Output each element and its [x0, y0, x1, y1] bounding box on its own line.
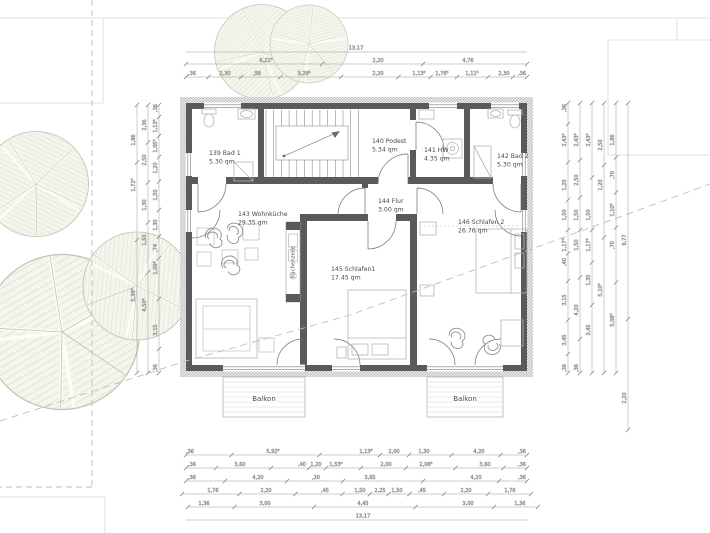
- dim-label: 2,25: [374, 488, 385, 494]
- room-area-bad1: 5.30 qm: [209, 159, 235, 166]
- dim-label: 6,21⁵: [259, 58, 272, 64]
- dim-label: 1,13⁵: [412, 71, 425, 77]
- dim-label: 1,20: [153, 162, 159, 173]
- dim-label: 2,50: [142, 154, 148, 165]
- dim-label: ,36: [186, 449, 194, 455]
- dim-label: 2,00: [388, 449, 399, 455]
- room-area-wohnkueche: 29.35 qm: [238, 220, 268, 227]
- dim-label: 1,72⁵: [131, 178, 137, 191]
- dim-label: 3,45: [586, 324, 592, 335]
- kitchen-label: Küchenzeile: [291, 245, 297, 278]
- vertical-boundary: [0, 0, 92, 487]
- dim-label: 4,20: [574, 304, 580, 315]
- dim-label: ,36: [188, 462, 196, 468]
- dim-label: ,74: [153, 244, 159, 252]
- dim-label: 1,35: [586, 274, 592, 285]
- room-area-hw: 4.35 qm: [424, 156, 450, 163]
- dim-label: 3,00: [462, 501, 473, 507]
- dim-label: ,40: [562, 258, 568, 266]
- balcony-1-label: Balkon: [252, 395, 276, 403]
- dim-label: 2,43⁵: [586, 133, 592, 146]
- dim-label: 2,20: [260, 488, 271, 494]
- dim-label: ,36: [518, 71, 526, 77]
- dim-label: 1,36: [514, 501, 525, 507]
- dim-label: ,36: [562, 364, 568, 372]
- dim-label: ,36: [188, 71, 196, 77]
- dim-label: 1,17⁵: [562, 238, 568, 251]
- dim-label: 2,50: [574, 174, 580, 185]
- dim-label: 4,20: [473, 449, 484, 455]
- room-label-podest: 140 Podest: [372, 138, 407, 145]
- room-label-bad2: 142 Bad 2: [497, 153, 529, 160]
- dim-label: ,36: [562, 104, 568, 112]
- room-area-flur: 3.00 qm: [378, 207, 404, 214]
- tree-icon: [0, 117, 103, 252]
- dim-label: 3,60: [479, 462, 490, 468]
- dim-label: 1,20: [598, 179, 604, 190]
- room-area-schlafen2: 26.76 qm: [458, 228, 488, 235]
- dim-label: 1,53⁵: [329, 462, 342, 468]
- dim-label: 1,50: [574, 209, 580, 220]
- overall-dim-top: 13,17: [349, 46, 364, 52]
- dim-label: ,70: [610, 241, 616, 249]
- floor-plan-drawing: Küchenzeile: [0, 0, 710, 533]
- dim-label: 1,36: [198, 501, 209, 507]
- dim-label: 1,13⁵: [153, 119, 159, 132]
- room-label-wohnkueche: 143 Wohnküche: [238, 211, 288, 218]
- dim-label: 2,20: [372, 58, 383, 64]
- dim-label: ,36: [153, 104, 159, 112]
- dim-label: 1,50: [562, 209, 568, 220]
- room-label-bad1: 139 Bad 1: [209, 150, 241, 157]
- dim-label: 9,77: [622, 234, 628, 245]
- dim-label: 1,11⁵: [465, 71, 478, 77]
- dim-label: ,36: [518, 462, 526, 468]
- dim-label: 2,43⁵: [574, 133, 580, 146]
- room-label-schlafen2: 146 Schlafen 2: [458, 219, 504, 226]
- dim-label: 1,50: [153, 189, 159, 200]
- dim-label: 2,30: [498, 71, 509, 77]
- dim-label: 5,08⁵: [610, 313, 616, 326]
- dim-label: 1,20: [310, 462, 321, 468]
- dim-label: 4,50⁵: [142, 298, 148, 311]
- balcony-2: Balkon: [427, 377, 503, 417]
- dim-label: 1,30: [418, 449, 429, 455]
- dim-label: 4,45: [357, 501, 368, 507]
- dim-label: 1,76⁵: [435, 71, 448, 77]
- dim-label: 1,20: [562, 179, 568, 190]
- dim-label: 1,50: [142, 234, 148, 245]
- dim-label: 3,15: [153, 324, 159, 335]
- dim-label: 1,05⁵: [153, 139, 159, 152]
- dim-label: 1,76: [207, 488, 218, 494]
- dim-label: ,45: [418, 488, 426, 494]
- dim-label: 3,45: [562, 334, 568, 345]
- dim-label: 1,30: [153, 219, 159, 230]
- dim-label: 2,20: [372, 71, 383, 77]
- kitchen-unit: Küchenzeile: [286, 222, 300, 302]
- dim-label: 4,20: [470, 475, 481, 481]
- dim-label: ,45: [321, 488, 329, 494]
- dim-label: 1,17⁵: [586, 238, 592, 251]
- dim-label: 1,09⁵: [153, 261, 159, 274]
- dim-label: 1,50: [354, 488, 365, 494]
- dim-label: ,36: [518, 449, 526, 455]
- dim-label: ,40: [298, 462, 306, 468]
- dim-label: 1,30: [142, 199, 148, 210]
- dim-label: 1,50: [574, 239, 580, 250]
- dim-label: 2,36: [142, 119, 148, 130]
- dim-label: 3,28⁵: [297, 71, 310, 77]
- dim-label: 5,38⁵: [131, 288, 137, 301]
- dim-label: 5,92⁵: [266, 449, 279, 455]
- dim-label: 1,50: [586, 209, 592, 220]
- floor-plan-page: Küchenzeile: [0, 0, 710, 533]
- dim-label: 2,43⁵: [562, 133, 568, 146]
- dim-label: 5,10⁵: [598, 283, 604, 296]
- dim-label: 1,76: [504, 488, 515, 494]
- dim-label: ,70: [610, 171, 616, 179]
- room-area-podest: 5.34 qm: [372, 147, 398, 154]
- dim-label: 2,06⁵: [419, 462, 432, 468]
- dim-label: ,20: [312, 475, 320, 481]
- dim-label: ,99: [253, 71, 261, 77]
- room-area-bad2: 5.30 qm: [497, 162, 523, 169]
- dim-label: 2,50: [598, 139, 604, 150]
- room-label-flur: 144 Flur: [378, 198, 404, 205]
- dim-label: ,36: [574, 364, 580, 372]
- dim-label: 4,76: [462, 58, 473, 64]
- dim-label: 1,50: [391, 488, 402, 494]
- balcony-1: Balkon: [223, 377, 305, 417]
- dim-label: ,36: [153, 364, 159, 372]
- dim-label: 1,86: [131, 134, 137, 145]
- dim-label: 3,00: [259, 501, 270, 507]
- dim-label: 1,86: [610, 134, 616, 145]
- dim-label: 3,60: [234, 462, 245, 468]
- dim-label: 2,00: [380, 462, 391, 468]
- building: Küchenzeile: [180, 97, 533, 377]
- dim-label: 3,15: [562, 294, 568, 305]
- dim-label: 4,20: [252, 475, 263, 481]
- dim-label: ,36: [188, 475, 196, 481]
- room-label-schlafen1: 145 Schlafen1: [331, 266, 375, 273]
- dim-label: 2,30: [219, 71, 230, 77]
- room-label-hw: 141 HW: [424, 147, 449, 154]
- dim-label: 1,13⁵: [359, 449, 372, 455]
- dim-label: 2,20: [622, 392, 628, 403]
- dim-label: 2,20: [460, 488, 471, 494]
- dim-label: 1,10⁵: [610, 203, 616, 216]
- overall-dim-bottom: 13,17: [356, 514, 371, 520]
- balcony-2-label: Balkon: [453, 395, 477, 403]
- room-area-schlafen1: 17.45 qm: [331, 275, 361, 282]
- dim-label: 3,65: [364, 475, 375, 481]
- balconies: Balkon Balkon: [223, 377, 503, 417]
- dim-label: ,36: [518, 475, 526, 481]
